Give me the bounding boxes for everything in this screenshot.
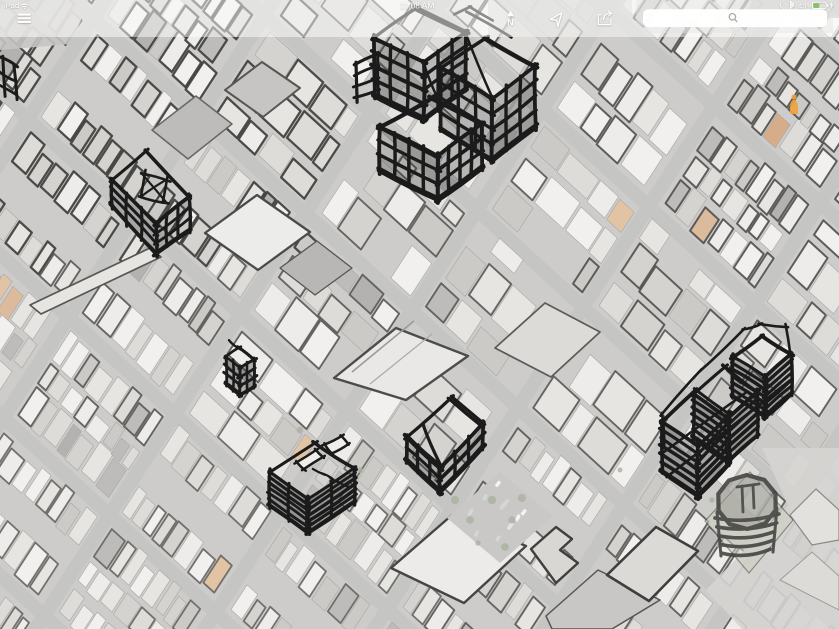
svg-text:43%: 43%	[798, 1, 813, 10]
svg-text:iPad: iPad	[4, 1, 19, 10]
svg-text:N: N	[507, 18, 514, 28]
svg-text:11:08 AM: 11:08 AM	[400, 0, 435, 10]
